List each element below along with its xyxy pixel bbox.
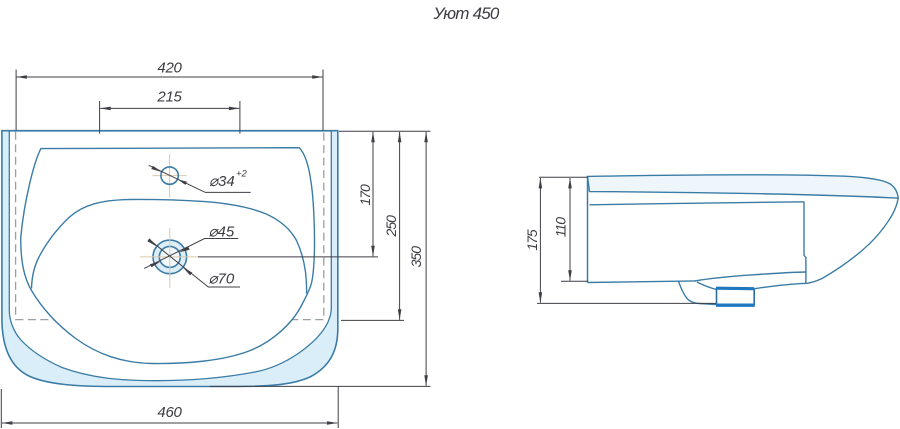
svg-text:⌀45: ⌀45 bbox=[209, 224, 235, 241]
svg-text:170: 170 bbox=[357, 184, 373, 206]
svg-text:⌀70: ⌀70 bbox=[209, 271, 235, 288]
svg-text:460: 460 bbox=[157, 404, 182, 421]
svg-text:110: 110 bbox=[553, 217, 569, 238]
svg-text:175: 175 bbox=[524, 229, 540, 251]
svg-text:⌀34: ⌀34 bbox=[209, 173, 235, 190]
svg-text:250: 250 bbox=[383, 215, 399, 238]
svg-text:Уют 450: Уют 450 bbox=[432, 4, 499, 23]
svg-text:420: 420 bbox=[157, 60, 182, 77]
svg-text:350: 350 bbox=[408, 246, 424, 268]
svg-text:215: 215 bbox=[156, 88, 182, 105]
svg-text:+2: +2 bbox=[236, 169, 248, 180]
